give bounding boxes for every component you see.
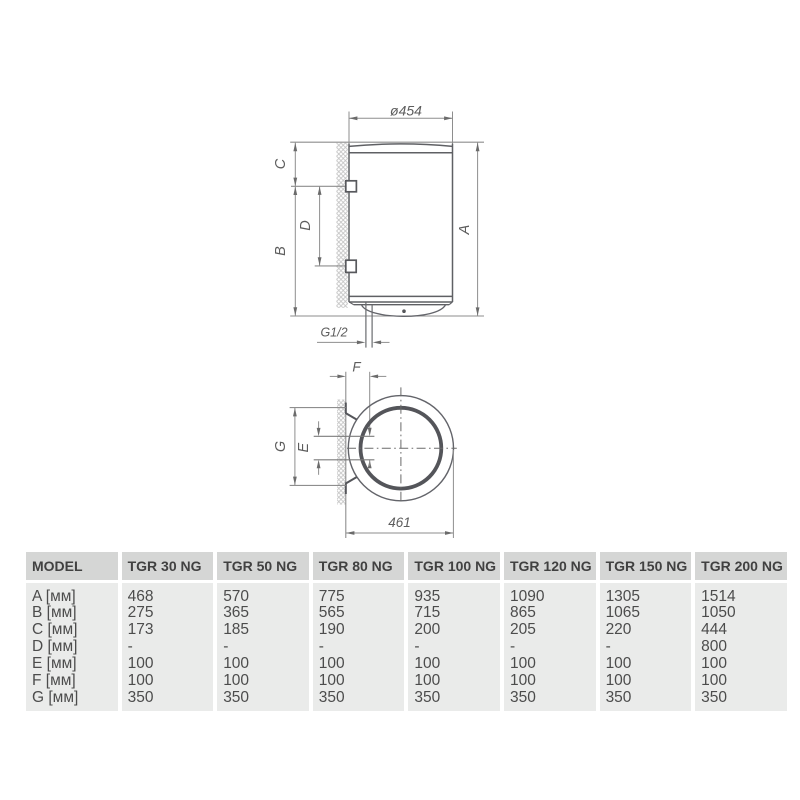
svg-text:F: F [352,360,361,375]
svg-text:C: C [273,158,289,169]
svg-text:D: D [298,220,314,230]
svg-text:G1/2: G1/2 [320,326,347,340]
svg-text:B: B [273,246,289,256]
svg-text:G: G [273,441,289,452]
svg-text:A: A [457,225,473,236]
svg-text:461: 461 [388,515,411,530]
svg-text:ø454: ø454 [390,103,422,119]
svg-text:E: E [296,443,312,453]
